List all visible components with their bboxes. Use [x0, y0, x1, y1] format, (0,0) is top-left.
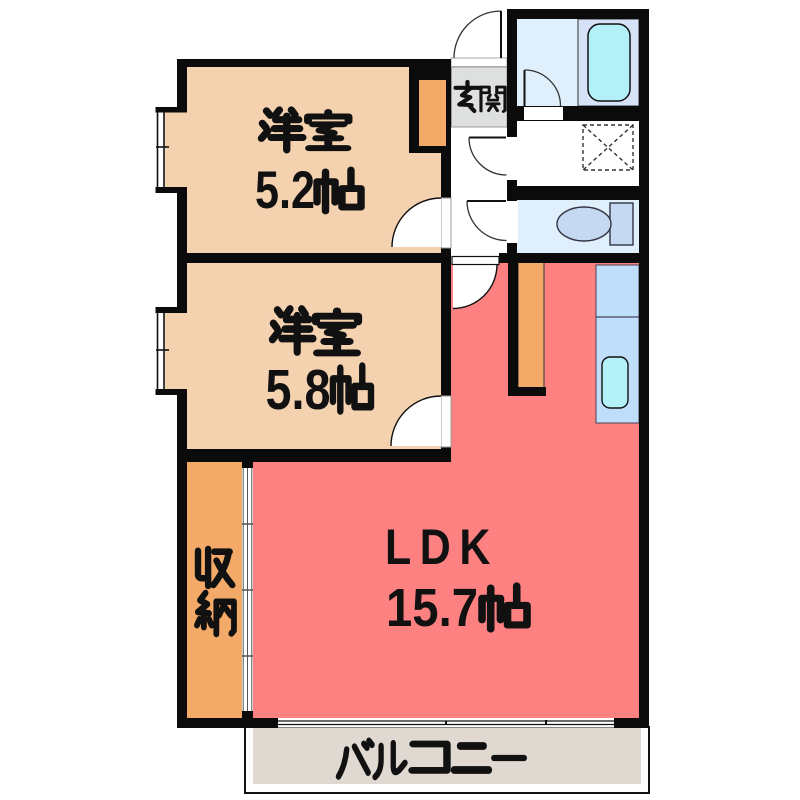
svg-text:5.2: 5.2: [255, 161, 315, 220]
svg-text:LDK: LDK: [385, 519, 499, 575]
svg-text:15.7: 15.7: [386, 578, 478, 638]
svg-text:5.8: 5.8: [266, 358, 331, 422]
